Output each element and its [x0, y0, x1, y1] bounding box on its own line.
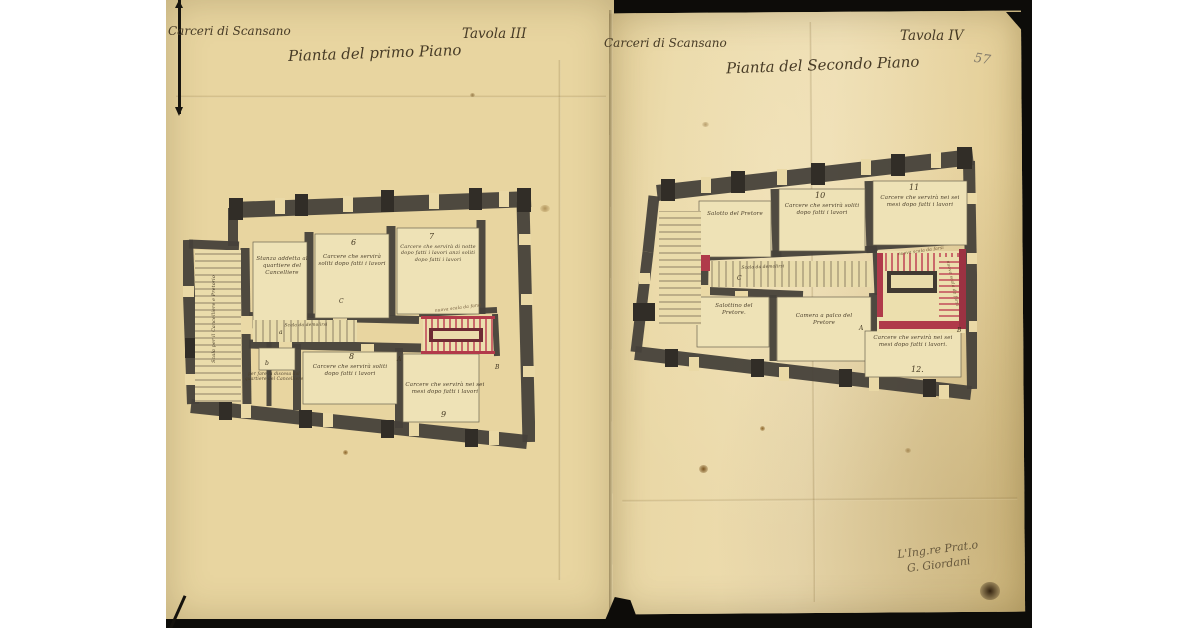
room-label-camera: Camera a palco del Pretore [785, 313, 863, 327]
floor-plan-second-floor: Salotto del Pretore 10 Carcere che servi… [625, 145, 977, 405]
room-number-9: 9 [441, 410, 446, 419]
room-label-staircase: Scala per il Cancelliere e Pretorio [212, 259, 218, 379]
collection-title-left: Carceri di Scansano [168, 24, 291, 38]
marker-C: C [737, 275, 742, 282]
stain [470, 93, 475, 97]
room-label-12: Carcere che servirà nei sei mesi dopo fa… [867, 335, 959, 349]
marker-B: B [957, 327, 961, 334]
pencil-page-number: 57 [973, 51, 992, 68]
red-landing [701, 255, 710, 271]
room-label-6: Carcere che servirà soliti dopo fatti i … [317, 254, 387, 268]
room-number-11: 11 [909, 183, 919, 192]
stain [540, 205, 550, 212]
small-room-note: per fare la discesa dal quartiere del Ca… [243, 372, 305, 382]
fold-crease [176, 95, 606, 98]
room-number-7: 7 [429, 232, 434, 241]
main-staircase [659, 211, 701, 325]
fold-crease [558, 60, 561, 580]
main-staircase [195, 250, 241, 402]
fold-crease [622, 497, 1017, 503]
plate-label-right: Tavola IV [900, 28, 964, 44]
marker-b: b [265, 360, 269, 367]
room-label-9: Carcere che servirà nei sei mesi dopo fa… [405, 382, 485, 396]
room-label-8: Carcere che servirà soliti dopo fatti i … [307, 364, 393, 378]
room-label-salotto: Salotto del Pretore [703, 211, 767, 218]
stain [980, 582, 1000, 600]
stain [702, 122, 709, 127]
scanned-drawing-canvas: Carceri di Scansano Tavola III Pianta de… [0, 0, 1200, 628]
page-seam [609, 10, 613, 618]
room-label-7: Carcere che servirà di notte dopo fatti … [399, 244, 477, 263]
marker-B: B [495, 364, 499, 371]
room-label-salottino: Salottino del Pretore. [705, 303, 763, 317]
room-number-10: 10 [815, 191, 825, 200]
floor-plan-first-floor: Scala per il Cancelliere e Pretorio Stan… [183, 188, 535, 450]
new-red-staircase [421, 316, 495, 354]
stain [699, 465, 708, 473]
plate-label-left: Tavola III [462, 26, 526, 42]
marker-A: A [397, 356, 401, 363]
stain [905, 448, 911, 453]
stain [760, 426, 765, 431]
room-label-10: Carcere che servirà soliti dopo fatti i … [783, 203, 861, 217]
collection-title-right: Carceri di Scansano [604, 36, 727, 50]
marker-A: A [859, 325, 863, 332]
room-label-11: Carcere che servirà nei sei mesi dopo fa… [877, 195, 963, 209]
floor-plan-first-floor-drawing [183, 188, 535, 450]
stain [343, 450, 348, 455]
room-number-8: 8 [349, 352, 354, 361]
floor-plan-second-floor-drawing [625, 145, 977, 405]
room-number-6: 6 [351, 238, 356, 247]
room-label-cancelliere: Stanza addetta al quartiere del Cancelli… [255, 256, 309, 277]
binding-rod-icon [178, 0, 181, 114]
room-number-12: 12. [911, 365, 924, 374]
marker-c: C [339, 298, 344, 305]
marker-a: a [279, 329, 283, 336]
